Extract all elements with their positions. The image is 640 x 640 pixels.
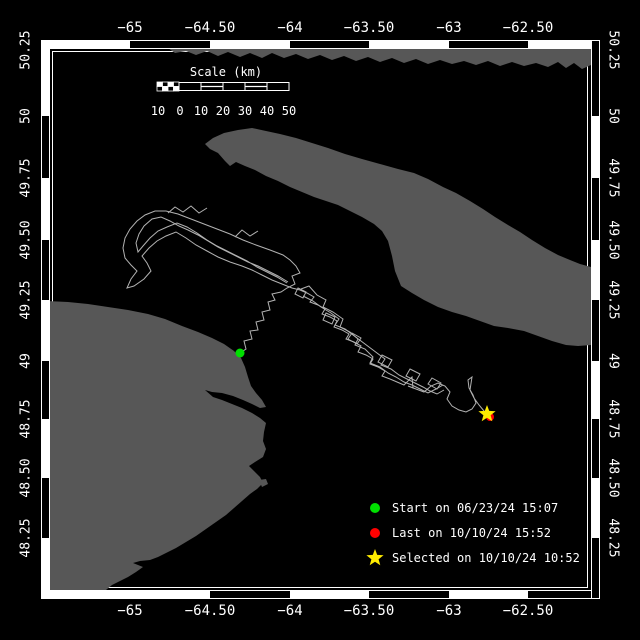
scale-bar-title: Scale (km) (190, 65, 262, 79)
start-marker (236, 349, 245, 358)
axis-left-label-6: 48.75 (19, 399, 34, 438)
axis-bottom-label-1: −64.50 (185, 603, 236, 619)
axis-left-label-0: 50.25 (19, 30, 34, 69)
scale-number-2: 10 (194, 104, 208, 118)
axis-left-label-2: 49.75 (19, 158, 34, 197)
legend-last-label: Last on 10/10/24 15:52 (392, 526, 551, 540)
axis-bottom-label-3: −63.50 (344, 603, 395, 619)
scale-number-4: 30 (238, 104, 252, 118)
legend-symbol-1 (370, 528, 380, 538)
scale-number-0: 10 (151, 104, 165, 118)
scale-number-5: 40 (260, 104, 274, 118)
scale-bar (157, 82, 289, 91)
axis-right-label-8: 48.25 (606, 518, 621, 557)
scale-number-6: 50 (282, 104, 296, 118)
map-viewport[interactable]: Start on 06/23/24 15:07 Last on 10/10/24… (0, 0, 640, 640)
axis-bottom-label-2: −64 (277, 603, 302, 619)
axis-right-label-3: 49.50 (606, 220, 621, 259)
axis-right-label-4: 49.25 (606, 280, 621, 319)
axis-left-label-3: 49.50 (19, 220, 34, 259)
axis-top-label-1: −64.50 (185, 20, 236, 36)
axis-left-label-1: 50 (19, 108, 34, 124)
axis-bottom-label-4: −63 (436, 603, 461, 619)
legend-start-label: Start on 06/23/24 15:07 (392, 501, 558, 515)
axis-bottom-label-0: −65 (117, 603, 142, 619)
axis-right-label-5: 49 (606, 353, 621, 369)
axis-right-label-7: 48.50 (606, 458, 621, 497)
axis-right-label-6: 48.75 (606, 399, 621, 438)
axis-left-label-8: 48.25 (19, 518, 34, 557)
scale-number-3: 20 (216, 104, 230, 118)
axis-top-label-4: −63 (436, 20, 461, 36)
axis-top-label-5: −62.50 (503, 20, 554, 36)
scale-number-1: 0 (176, 104, 183, 118)
axis-top-label-3: −63.50 (344, 20, 395, 36)
axis-right-label-2: 49.75 (606, 158, 621, 197)
axis-top-label-2: −64 (277, 20, 302, 36)
axis-right-label-0: 50.25 (606, 30, 621, 69)
map-canvas[interactable] (0, 0, 640, 640)
axis-left-label-4: 49.25 (19, 280, 34, 319)
axis-left-label-5: 49 (19, 353, 34, 369)
axis-top-label-0: −65 (117, 20, 142, 36)
axis-bottom-label-5: −62.50 (503, 603, 554, 619)
legend-symbol-0 (370, 503, 380, 513)
axis-right-label-1: 50 (606, 108, 621, 124)
axis-left-label-7: 48.50 (19, 458, 34, 497)
legend-selected-label: Selected on 10/10/24 10:52 (392, 551, 580, 565)
